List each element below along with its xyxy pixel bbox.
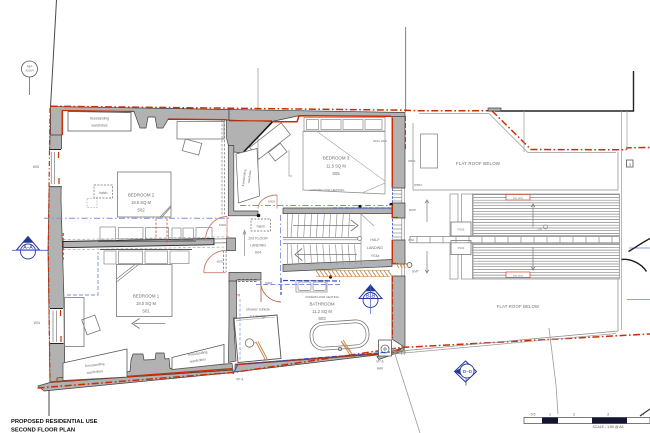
svg-text:S04: S04 xyxy=(255,251,261,255)
svg-text:FLAT ROOF BELOW: FLAT ROOF BELOW xyxy=(497,304,539,309)
svg-text:11.5 SQ M: 11.5 SQ M xyxy=(326,164,346,169)
svg-text:FLAT ROOF BELOW: FLAT ROOF BELOW xyxy=(456,161,501,166)
svg-text:2.1 m high: 2.1 m high xyxy=(250,315,267,319)
svg-text:18.0 SQ M: 18.0 SQ M xyxy=(131,200,152,205)
svg-text:1: 1 xyxy=(549,413,551,417)
svg-text:S002: S002 xyxy=(219,223,227,227)
svg-text:LANDING: LANDING xyxy=(367,246,383,250)
svg-text:BEDROOM 2: BEDROOM 2 xyxy=(128,193,155,198)
svg-text:S003: S003 xyxy=(268,200,276,204)
svg-text:S05: S05 xyxy=(332,171,340,176)
svg-text:S03: S03 xyxy=(318,316,326,321)
svg-text:3: 3 xyxy=(607,413,609,417)
svg-text:W01: W01 xyxy=(34,321,41,325)
svg-text:S001: S001 xyxy=(216,260,223,264)
svg-text:HALF: HALF xyxy=(370,238,380,242)
svg-text:box vent: box vent xyxy=(513,196,523,200)
svg-text:Y03a: Y03a xyxy=(371,254,379,258)
svg-text:2nd FLOOR: 2nd FLOOR xyxy=(248,237,268,241)
svg-text:SECOND FLOOR PLAN: SECOND FLOOR PLAN xyxy=(11,428,75,433)
svg-text:AAV: AAV xyxy=(377,367,384,371)
svg-text:TR: TR xyxy=(236,294,241,298)
svg-text:18.0 SQ M: 18.0 SQ M xyxy=(136,301,157,306)
svg-text:hatch: hatch xyxy=(99,191,107,195)
svg-text:wardrobes: wardrobes xyxy=(91,124,108,128)
svg-text:freestanding: freestanding xyxy=(90,117,109,121)
svg-text:P101: P101 xyxy=(458,246,465,250)
svg-text:0.5: 0.5 xyxy=(531,413,536,417)
svg-text:shower cubicle: shower cubicle xyxy=(246,308,270,312)
svg-text:W502: W502 xyxy=(408,159,416,163)
svg-text:2: 2 xyxy=(573,413,575,417)
svg-text:4: 4 xyxy=(642,413,644,417)
svg-text:BEDROOM 1: BEDROOM 1 xyxy=(133,294,160,299)
svg-text:hatch: hatch xyxy=(257,225,265,229)
svg-text:SCALE - 1:50 @ A3: SCALE - 1:50 @ A3 xyxy=(593,425,624,429)
svg-text:box vent: box vent xyxy=(513,273,523,277)
svg-text:D–D: D–D xyxy=(463,369,473,374)
svg-text:W02: W02 xyxy=(33,165,40,169)
svg-text:VP &: VP & xyxy=(236,378,244,382)
svg-text:3: 3 xyxy=(629,163,631,167)
svg-text:S01: S01 xyxy=(142,309,150,314)
svg-text:SVP: SVP xyxy=(412,270,419,274)
svg-text:VP &: VP & xyxy=(376,360,384,364)
svg-text:PROPOSED RESIDENTIAL USE: PROPOSED RESIDENTIAL USE xyxy=(11,419,98,425)
svg-text:UNDERFLOOR HEATING: UNDERFLOOR HEATING xyxy=(305,295,339,299)
svg-text:A2014: A2014 xyxy=(25,69,34,73)
svg-text:S02: S02 xyxy=(137,208,145,213)
svg-text:W04: W04 xyxy=(408,238,415,242)
svg-text:C07: C07 xyxy=(538,227,543,231)
svg-text:BEDROOM 3: BEDROOM 3 xyxy=(323,156,350,161)
svg-text:BATHROOM: BATHROOM xyxy=(309,302,334,307)
svg-text:W503: W503 xyxy=(414,183,422,187)
svg-text:LANDING: LANDING xyxy=(250,244,266,248)
svg-text:P102: P102 xyxy=(458,228,465,232)
svg-text:RWP: RWP xyxy=(409,208,416,212)
svg-text:11.2 SQ M: 11.2 SQ M xyxy=(312,309,332,314)
